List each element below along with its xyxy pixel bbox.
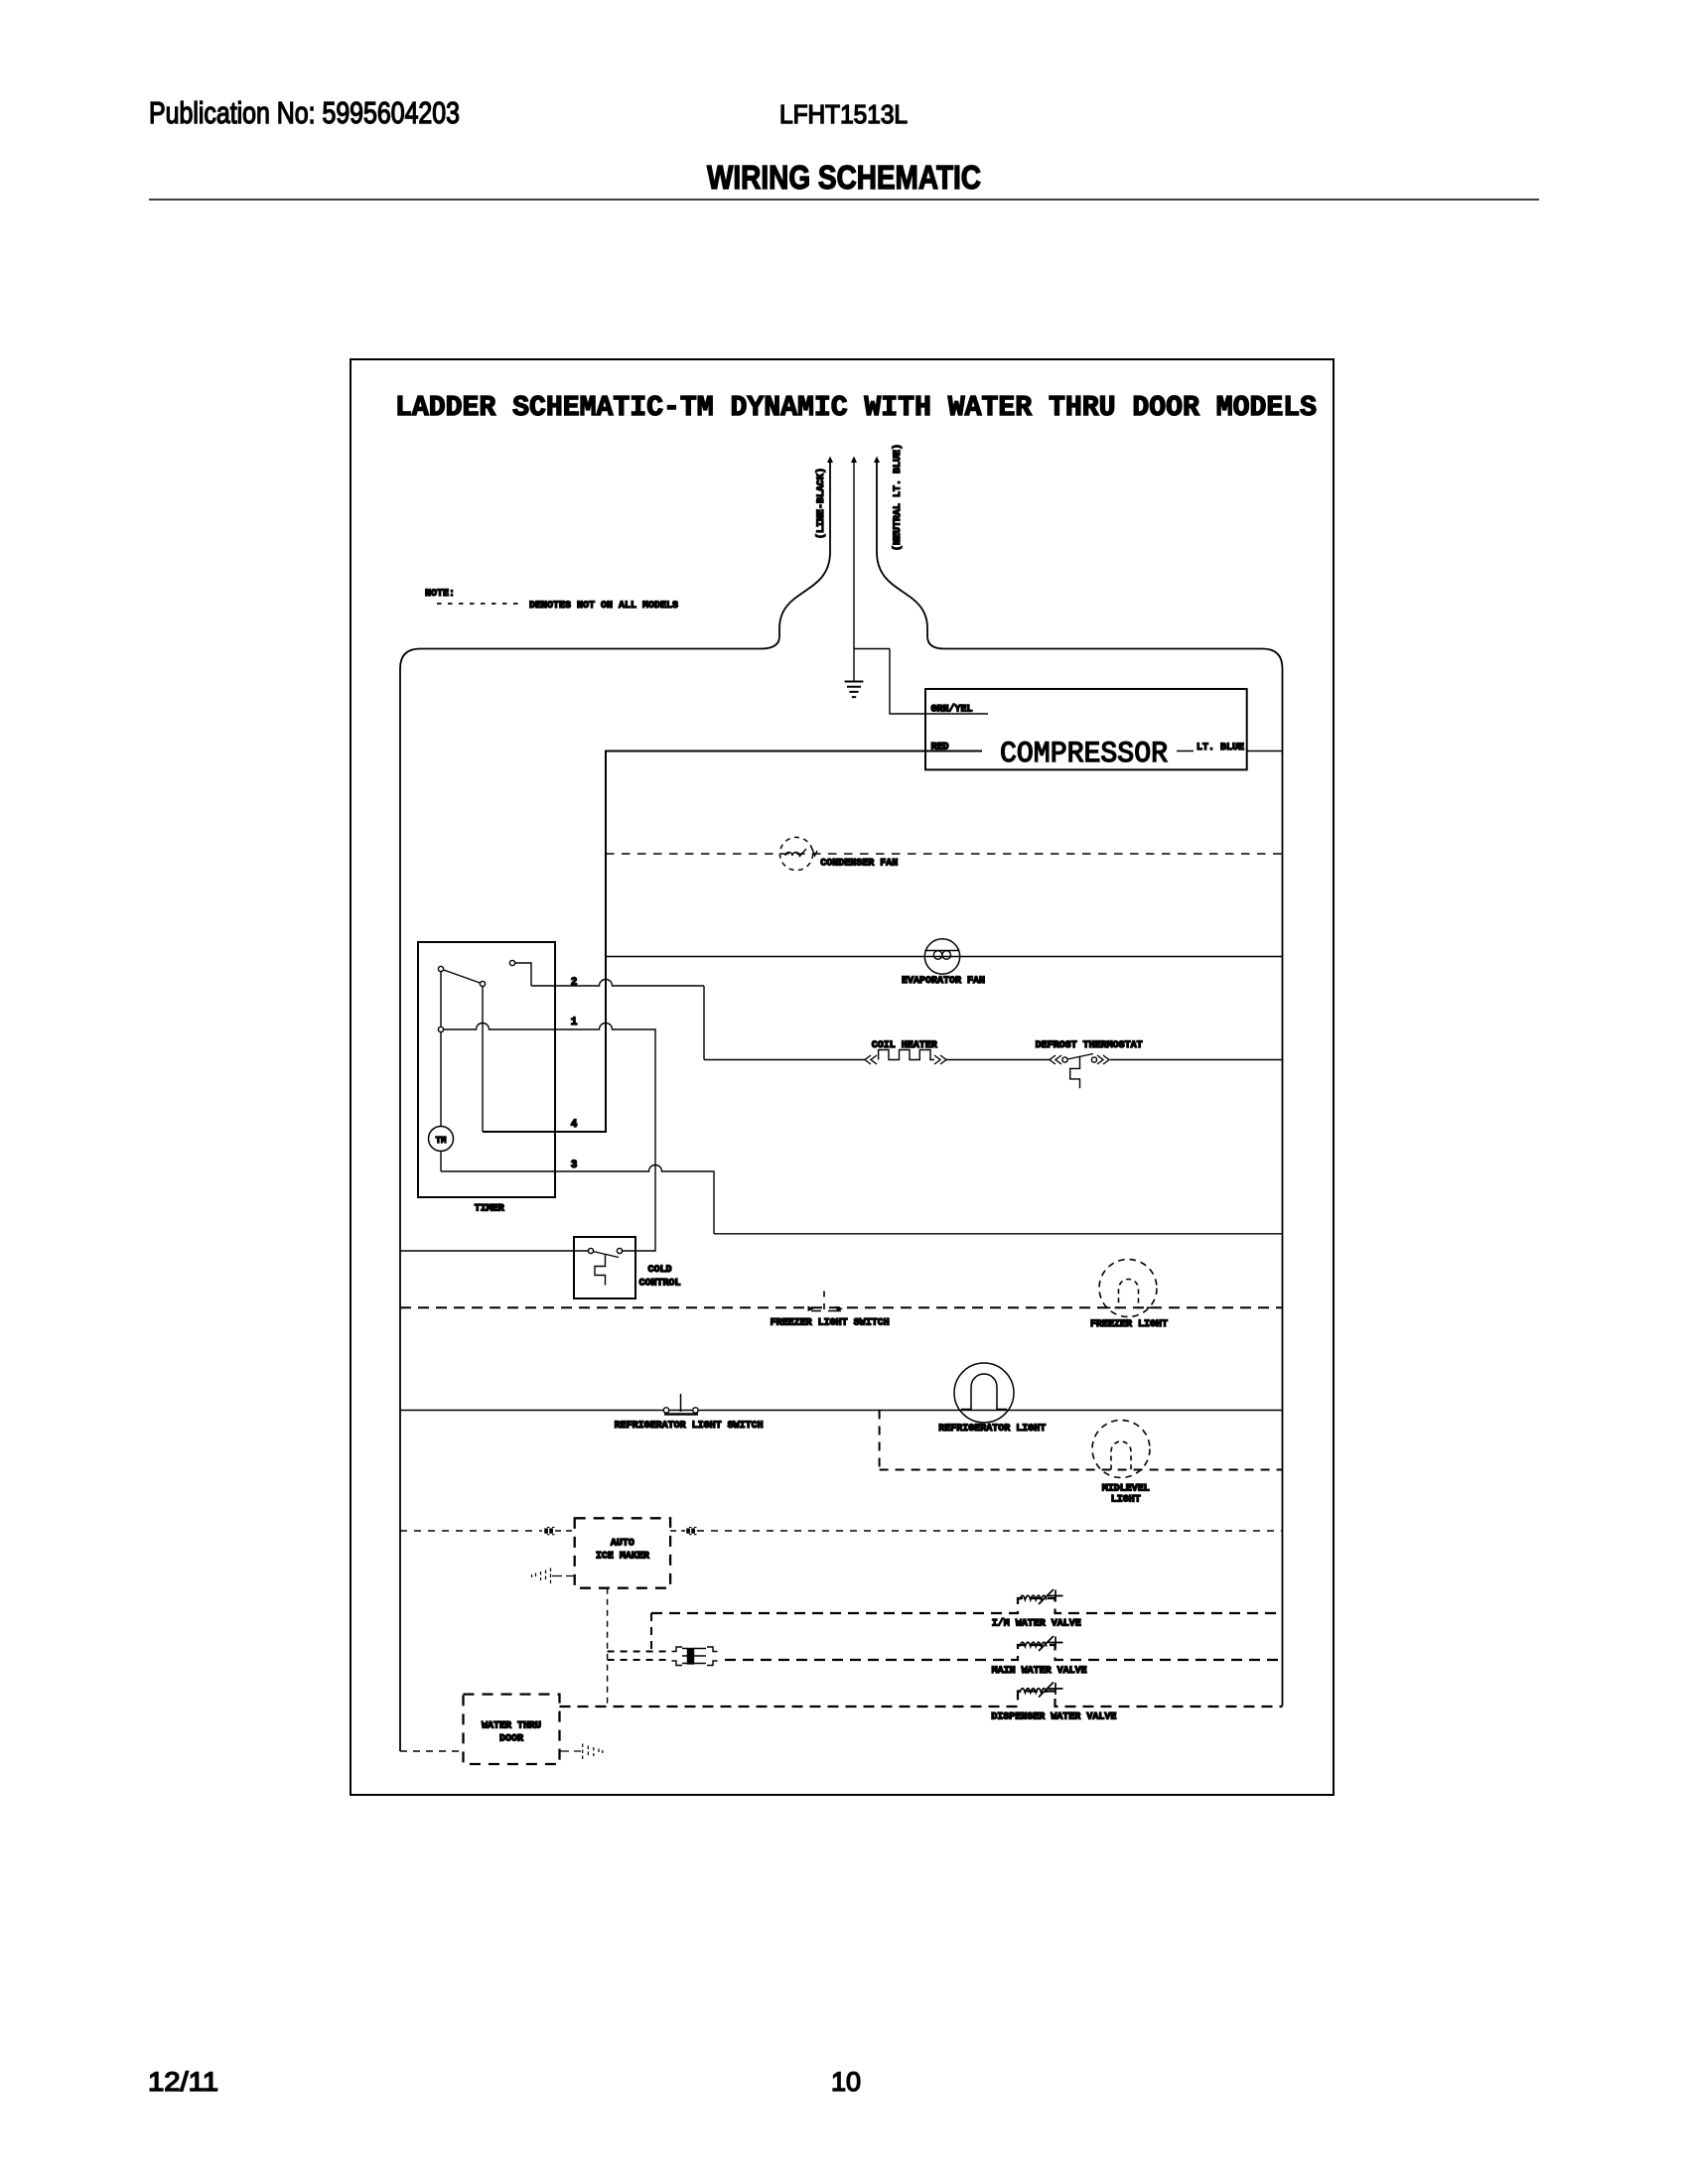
svg-text:LADDER SCHEMATIC-TM DYNAMIC WI: LADDER SCHEMATIC-TM DYNAMIC WITH WATER T… bbox=[395, 391, 1317, 424]
svg-text:LFHT1513L: LFHT1513L bbox=[779, 99, 908, 129]
svg-text:TM: TM bbox=[436, 1136, 447, 1146]
svg-text:LIGHT: LIGHT bbox=[1111, 1495, 1141, 1506]
svg-text:WIRING SCHEMATIC: WIRING SCHEMATIC bbox=[707, 159, 981, 196]
svg-text:COIL HEATER: COIL HEATER bbox=[872, 1040, 937, 1051]
svg-text:DOOR: DOOR bbox=[499, 1734, 523, 1745]
svg-text:COMPRESSOR: COMPRESSOR bbox=[1000, 738, 1168, 771]
svg-text:Publication No: 5995604203: Publication No: 5995604203 bbox=[149, 95, 460, 130]
svg-text:CONDENSER FAN: CONDENSER FAN bbox=[820, 859, 898, 870]
svg-text:MAIN WATER VALVE: MAIN WATER VALVE bbox=[992, 1666, 1087, 1677]
svg-text:CONTROL: CONTROL bbox=[638, 1279, 680, 1290]
svg-text:DEFROST THERMOSTAT: DEFROST THERMOSTAT bbox=[1036, 1040, 1143, 1051]
svg-text:GRN/YEL: GRN/YEL bbox=[931, 704, 973, 716]
svg-text:REFRIGERATOR LIGHT: REFRIGERATOR LIGHT bbox=[938, 1424, 1046, 1434]
svg-text:REFRIGERATOR LIGHT SWITCH: REFRIGERATOR LIGHT SWITCH bbox=[615, 1421, 764, 1432]
svg-text:(NEUTRAL LT. BLUE): (NEUTRAL LT. BLUE) bbox=[892, 444, 904, 551]
svg-text:FREEZER LIGHT: FREEZER LIGHT bbox=[1090, 1319, 1168, 1330]
svg-text:WATER THRU: WATER THRU bbox=[482, 1721, 541, 1732]
svg-text:LT. BLUE: LT. BLUE bbox=[1196, 743, 1244, 753]
svg-text:AUTO: AUTO bbox=[611, 1539, 634, 1550]
svg-text:I/M WATER VALVE: I/M WATER VALVE bbox=[992, 1618, 1081, 1630]
svg-text:4: 4 bbox=[571, 1119, 578, 1131]
svg-text:MIDLEVEL: MIDLEVEL bbox=[1102, 1484, 1150, 1495]
svg-text:3: 3 bbox=[571, 1160, 578, 1171]
svg-text:DENOTES NOT ON ALL MODELS: DENOTES NOT ON ALL MODELS bbox=[529, 601, 678, 612]
svg-text:DISPENSER WATER VALVE: DISPENSER WATER VALVE bbox=[991, 1712, 1116, 1723]
svg-text:NOTE:: NOTE: bbox=[425, 589, 455, 600]
svg-text:TIMER: TIMER bbox=[475, 1204, 504, 1215]
svg-text:COLD: COLD bbox=[647, 1265, 671, 1276]
svg-text:EVAPORATOR FAN: EVAPORATOR FAN bbox=[902, 976, 985, 987]
svg-text:2: 2 bbox=[571, 977, 578, 989]
svg-text:10: 10 bbox=[831, 2067, 861, 2097]
svg-text:(LINE-BLACK): (LINE-BLACK) bbox=[815, 468, 827, 539]
svg-text:12/11: 12/11 bbox=[148, 2067, 218, 2097]
svg-text:ICE MAKER: ICE MAKER bbox=[596, 1552, 649, 1563]
svg-text:FREEZER LIGHT SWITCH: FREEZER LIGHT SWITCH bbox=[771, 1318, 890, 1329]
svg-text:1: 1 bbox=[571, 1017, 578, 1028]
